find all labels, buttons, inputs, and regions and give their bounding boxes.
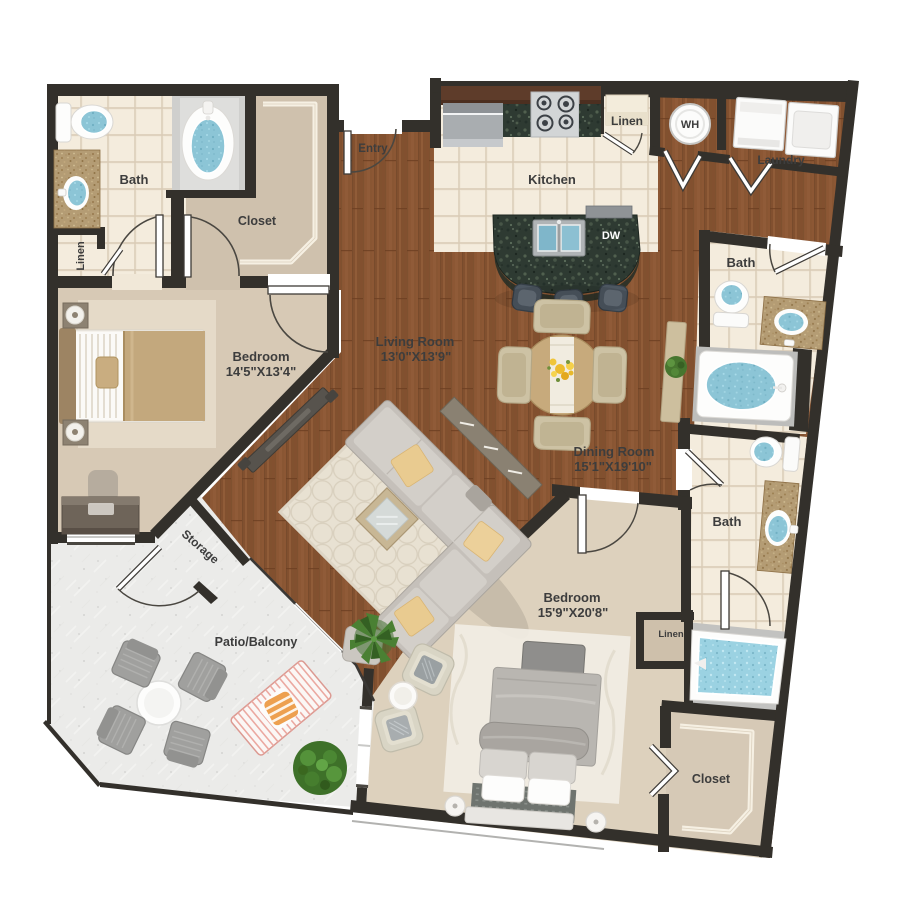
svg-text:15'1"X19'10": 15'1"X19'10" — [574, 459, 652, 474]
svg-text:Bedroom: Bedroom — [232, 349, 289, 364]
svg-text:15'9"X20'8": 15'9"X20'8" — [538, 605, 609, 620]
svg-text:14'5"X13'4": 14'5"X13'4" — [226, 364, 297, 379]
svg-text:13'0"X13'9": 13'0"X13'9" — [381, 349, 452, 364]
svg-text:Bath: Bath — [120, 172, 149, 187]
svg-text:Laundry: Laundry — [757, 153, 805, 167]
svg-text:Closet: Closet — [238, 214, 277, 228]
svg-text:WH: WH — [681, 119, 699, 131]
svg-text:Patio/Balcony: Patio/Balcony — [215, 635, 298, 649]
svg-text:Entry: Entry — [358, 143, 388, 155]
svg-text:Dining Room: Dining Room — [574, 444, 655, 459]
svg-text:Bath: Bath — [727, 255, 756, 270]
svg-text:Linen: Linen — [658, 629, 684, 640]
svg-text:Bath: Bath — [713, 514, 742, 529]
svg-text:Linen: Linen — [75, 241, 87, 271]
svg-text:DW: DW — [602, 230, 621, 242]
svg-text:Living Room: Living Room — [376, 334, 455, 349]
svg-text:Bedroom: Bedroom — [543, 590, 600, 605]
svg-text:Kitchen: Kitchen — [528, 172, 576, 187]
svg-text:Linen: Linen — [611, 114, 643, 128]
svg-text:Closet: Closet — [692, 772, 731, 786]
